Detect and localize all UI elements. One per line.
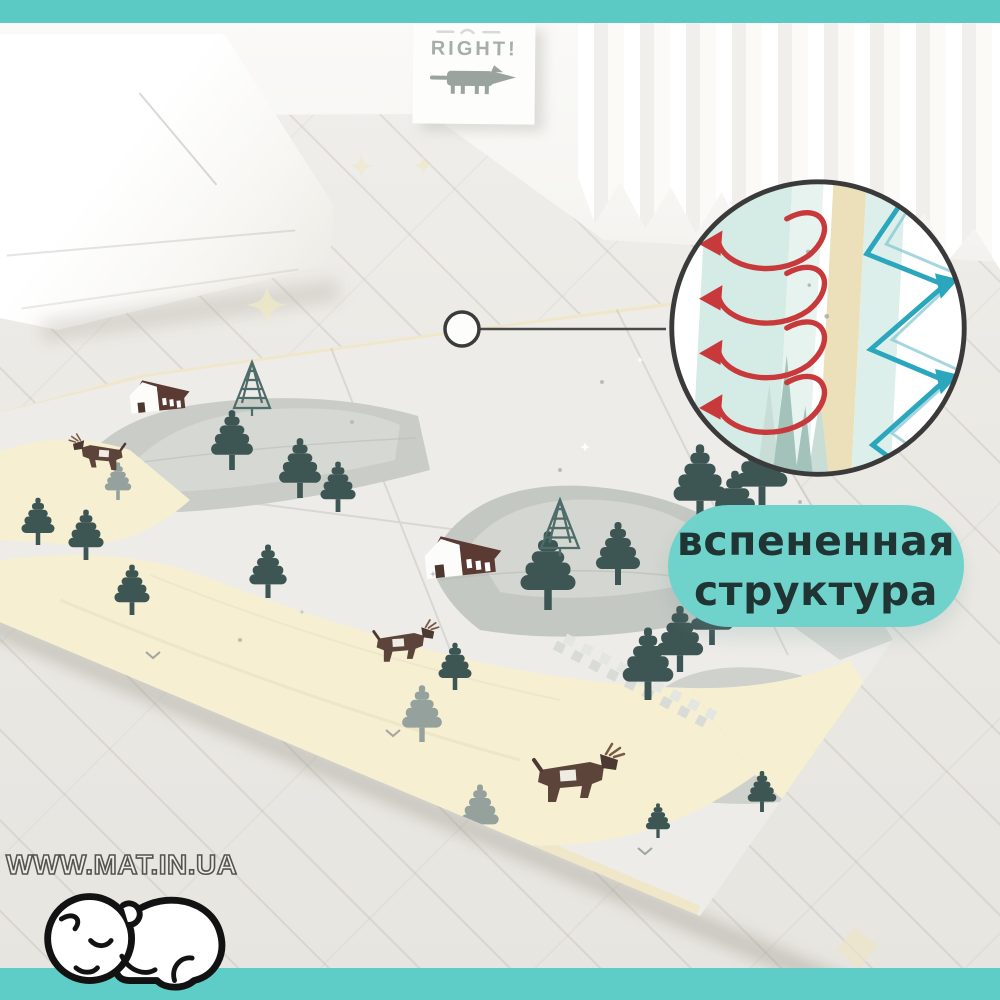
- poster-title: RIGHT!: [431, 38, 518, 62]
- watermark-text: WWW.MAT.IN.UA: [6, 849, 237, 881]
- sofa-cushion-seam: [139, 92, 218, 185]
- sleeping-baby-icon: [28, 880, 243, 1000]
- badge-line-2: структура: [694, 566, 938, 616]
- wall-poster: RIGHT!: [412, 21, 535, 124]
- bare-tree: [893, 728, 917, 792]
- teal-border-top: [0, 0, 1000, 23]
- sofa-cushion-seam: [6, 229, 295, 256]
- badge-line-1: вспененная: [677, 516, 955, 566]
- star-decoration: [836, 927, 878, 969]
- poster-cropped-text-marks: [431, 26, 517, 37]
- foam-structure-badge: вспененная структура: [668, 505, 964, 627]
- foam-structure-inset: [662, 172, 974, 484]
- product-photo-stage: RIGHT!: [0, 0, 1000, 1000]
- fox-icon: [430, 61, 518, 102]
